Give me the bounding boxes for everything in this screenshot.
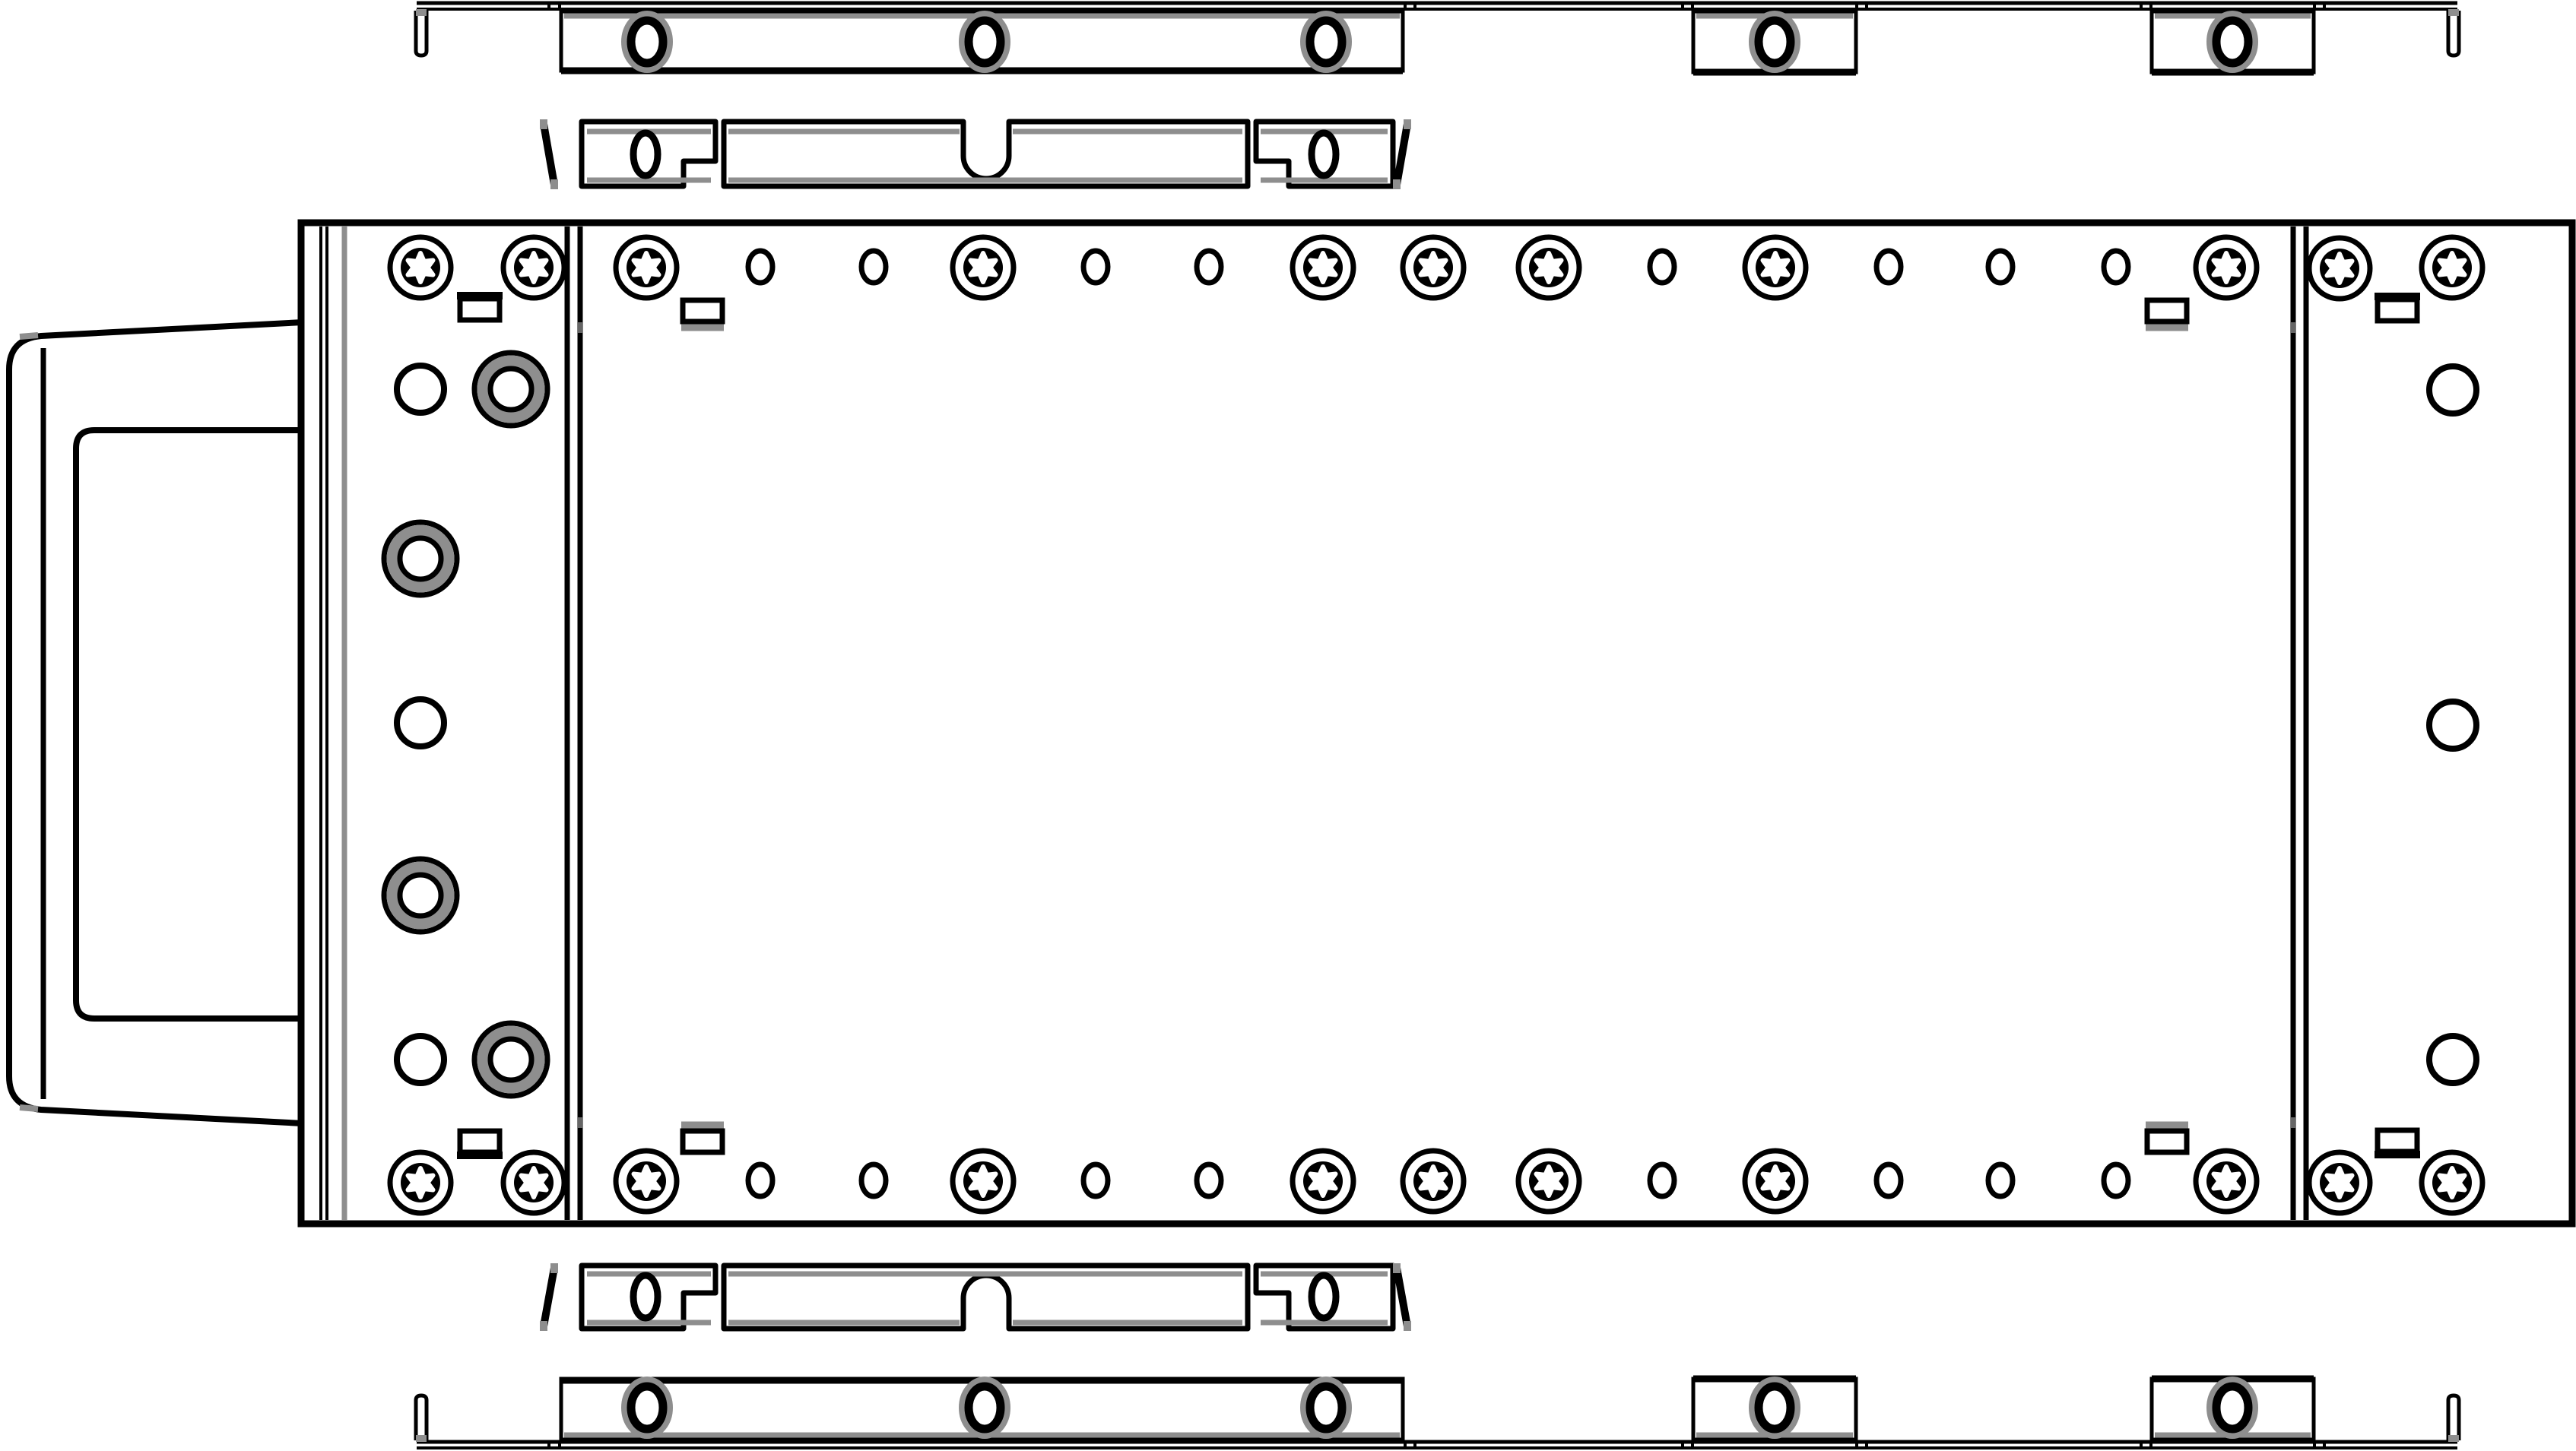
alignment-slot: [2146, 300, 2188, 328]
grommet-inner: [490, 1039, 531, 1080]
round-hole: [2429, 1036, 2476, 1083]
spring-arm-gray-tip: [540, 1321, 547, 1331]
slot-outline: [460, 1131, 500, 1152]
rail-screw: [962, 1380, 1007, 1436]
rail-screw: [962, 14, 1007, 70]
spring-arm-gray-tip: [550, 179, 558, 189]
small-hole: [1083, 251, 1108, 283]
slot-outline: [683, 1131, 722, 1152]
alignment-slot: [457, 1131, 503, 1155]
front-bezel: [9, 322, 303, 1123]
rail-screw-head: [1310, 1386, 1342, 1429]
rail-screw-head: [631, 1386, 663, 1429]
rail-screw: [624, 1380, 670, 1436]
alignment-slot: [681, 1125, 724, 1152]
spring-arm-gray-tip: [1404, 119, 1411, 129]
torx-screw: [1518, 1151, 1579, 1212]
small-hole: [2104, 1164, 2128, 1196]
torx-screw: [2196, 1151, 2257, 1212]
rail-screw: [2210, 14, 2255, 70]
small-hole: [1876, 251, 1901, 283]
torx-screw: [1518, 237, 1579, 298]
slot-outline: [2378, 299, 2417, 321]
torx-screw: [953, 1151, 1014, 1212]
bottom-mounting-rail: [416, 1379, 2459, 1449]
rail-screw-head: [1310, 21, 1342, 63]
technical-drawing: [0, 0, 2576, 1451]
chassis-body: [301, 223, 2572, 1224]
torx-screw: [616, 237, 677, 298]
round-hole: [2429, 366, 2476, 413]
torx-screw: [2309, 238, 2370, 299]
torx-screw: [390, 237, 451, 298]
rail-end-hook: [2448, 11, 2459, 55]
rail-screw-head: [2216, 21, 2248, 63]
torx-screw: [1745, 1151, 1806, 1212]
spring-arm-gray-tip: [540, 119, 547, 129]
torx-screw: [2196, 237, 2257, 298]
torx-screw: [2422, 237, 2482, 298]
spring-arm-gray-tip: [550, 1263, 558, 1273]
torx-screw: [1403, 237, 1464, 298]
grommet-inner: [400, 875, 441, 916]
torx-screw: [1293, 1151, 1353, 1212]
small-hole: [1650, 1164, 1674, 1196]
spring-arm: [544, 124, 554, 185]
torx-screw: [503, 1152, 564, 1213]
rail-screw: [1303, 14, 1349, 70]
slot-outline: [2147, 1131, 2187, 1152]
bezel-gray-mark: [20, 335, 38, 337]
round-hole: [397, 366, 444, 413]
torx-screw: [1403, 1151, 1464, 1212]
torx-screw: [503, 237, 564, 298]
rail-screw: [1303, 1380, 1349, 1436]
grommet-inner: [400, 538, 441, 579]
slot-outline: [2147, 300, 2187, 322]
torx-screw: [1293, 237, 1353, 298]
torx-screw: [1745, 237, 1806, 298]
rail-screw-head: [2216, 1386, 2248, 1429]
small-hole: [1988, 1164, 2013, 1196]
bezel-gray-mark: [20, 1107, 38, 1109]
hook-gray-cap: [2448, 9, 2459, 16]
rail-screw: [1752, 1380, 1797, 1436]
grommet-ring: [384, 859, 457, 932]
bezel-outline: [9, 322, 303, 1123]
alignment-slot: [2146, 1125, 2188, 1152]
small-hole: [861, 1164, 886, 1196]
spring-arm-gray-tip: [1393, 1263, 1401, 1273]
rail-end-hook: [2448, 1396, 2459, 1440]
round-hole: [397, 1036, 444, 1083]
spring-arm-gray-tip: [1404, 1321, 1411, 1331]
grommet-ring: [384, 522, 457, 595]
small-hole: [861, 251, 886, 283]
spring-arm: [544, 1268, 554, 1326]
rail-screw-head: [631, 21, 663, 63]
torx-screw: [2309, 1152, 2370, 1213]
grommet-ring: [474, 353, 547, 426]
hook-gray-cap: [416, 9, 427, 16]
rail-end-hook: [416, 1396, 427, 1440]
small-hole: [1988, 251, 2013, 283]
top-clamp-bracket: [540, 119, 1411, 189]
slot-outline: [683, 300, 722, 322]
small-hole: [1197, 1164, 1221, 1196]
spring-arm: [1397, 124, 1407, 185]
chassis-outline: [301, 223, 2572, 1224]
rail-screw-head: [969, 1386, 1001, 1429]
drawing-svg: [0, 0, 2576, 1451]
bottom-clamp-bracket: [540, 1263, 1411, 1331]
alignment-slot: [2375, 296, 2420, 321]
spring-arm: [1397, 1268, 1407, 1326]
grommet-ring: [474, 1023, 547, 1096]
grommet-inner: [490, 369, 531, 410]
small-hole: [1197, 251, 1221, 283]
round-hole: [2429, 702, 2476, 749]
hook-gray-cap: [2448, 1435, 2459, 1442]
torx-screw: [616, 1151, 677, 1212]
bracket-hole: [633, 133, 658, 176]
rail-screw-head: [969, 21, 1001, 63]
rail-screw-head: [1759, 21, 1791, 63]
rail-screw-head: [1759, 1386, 1791, 1429]
spring-arm-gray-tip: [1393, 179, 1401, 189]
top-mounting-rail: [416, 2, 2459, 72]
small-hole: [1083, 1164, 1108, 1196]
bracket-hole: [633, 1275, 658, 1318]
hook-gray-cap: [416, 1435, 427, 1442]
round-hole: [397, 699, 444, 746]
small-hole: [748, 251, 772, 283]
bracket-hole: [1312, 1275, 1336, 1318]
torx-screw: [953, 237, 1014, 298]
slot-outline: [2378, 1130, 2417, 1152]
rail-screw: [1752, 14, 1797, 70]
small-hole: [2104, 251, 2128, 283]
rail-screw: [624, 14, 670, 70]
alignment-slot: [2375, 1130, 2420, 1155]
small-hole: [1650, 251, 1674, 283]
small-hole: [1876, 1164, 1901, 1196]
rail-screw: [2210, 1380, 2255, 1436]
small-hole: [748, 1164, 772, 1196]
rail-end-hook: [416, 11, 427, 55]
torx-screw: [390, 1152, 451, 1213]
bracket-hole: [1312, 133, 1336, 176]
slot-outline: [460, 299, 500, 320]
torx-screw: [2422, 1152, 2482, 1213]
alignment-slot: [681, 300, 724, 328]
alignment-slot: [457, 296, 503, 320]
